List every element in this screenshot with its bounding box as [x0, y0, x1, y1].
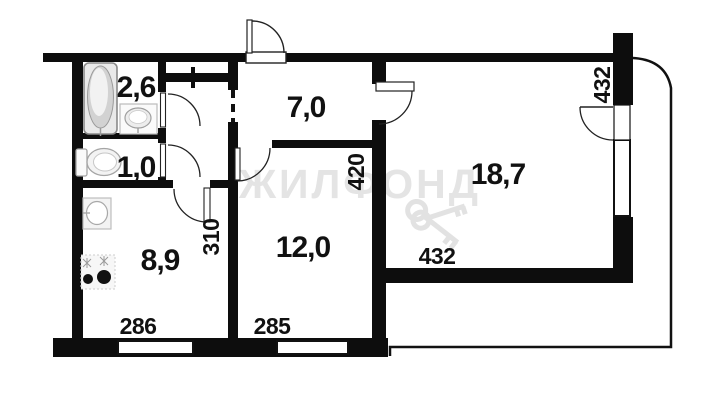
dimension-label-kitchen-width: 286	[120, 313, 157, 339]
wall	[210, 180, 228, 188]
wall	[272, 140, 372, 148]
living-room-window	[614, 140, 630, 216]
wall-tick-mark	[191, 67, 195, 88]
room-area-label-living-room: 18,7	[471, 158, 526, 191]
dimension-label-bedroom-height: 420	[343, 154, 369, 191]
kitchen-door	[174, 188, 210, 222]
wall	[372, 62, 386, 84]
room-area-label-kitchen: 8,9	[141, 244, 180, 277]
wall	[72, 53, 83, 357]
toilet-icon	[76, 149, 121, 177]
wall	[372, 120, 386, 355]
wall	[613, 33, 633, 105]
kitchen-sink-icon	[83, 198, 111, 229]
living-room-door	[376, 82, 414, 124]
room-area-label-hallway: 7,0	[287, 91, 326, 124]
toilet-door	[161, 144, 201, 177]
dimension-label-living-height: 432	[589, 67, 615, 104]
room-area-label-bathroom: 2,6	[117, 71, 156, 104]
wall	[158, 128, 166, 143]
wall	[165, 73, 237, 82]
dimension-label-kitchen-height: 310	[198, 219, 224, 256]
bathroom-door	[161, 93, 201, 127]
kitchen-window	[118, 341, 193, 354]
room-area-label-toilet: 1,0	[117, 151, 156, 184]
stove-icon	[81, 255, 115, 289]
balcony-door-frame	[614, 105, 630, 140]
wall	[373, 268, 633, 283]
wall	[158, 62, 166, 92]
wall	[43, 53, 613, 62]
floor-plan-image: ЖИЛФОНД	[0, 0, 725, 402]
floor-plan: ЖИЛФОНД	[0, 0, 725, 402]
washbasin-icon	[120, 104, 157, 134]
room-area-label-bedroom: 12,0	[276, 231, 331, 264]
dimension-label-bedroom-width: 285	[254, 313, 292, 339]
balcony-door	[580, 107, 613, 140]
bathtub-icon	[84, 63, 117, 136]
bedroom-window	[277, 341, 348, 354]
dimension-label-living-width: 432	[419, 243, 456, 269]
entrance-door	[246, 20, 286, 63]
